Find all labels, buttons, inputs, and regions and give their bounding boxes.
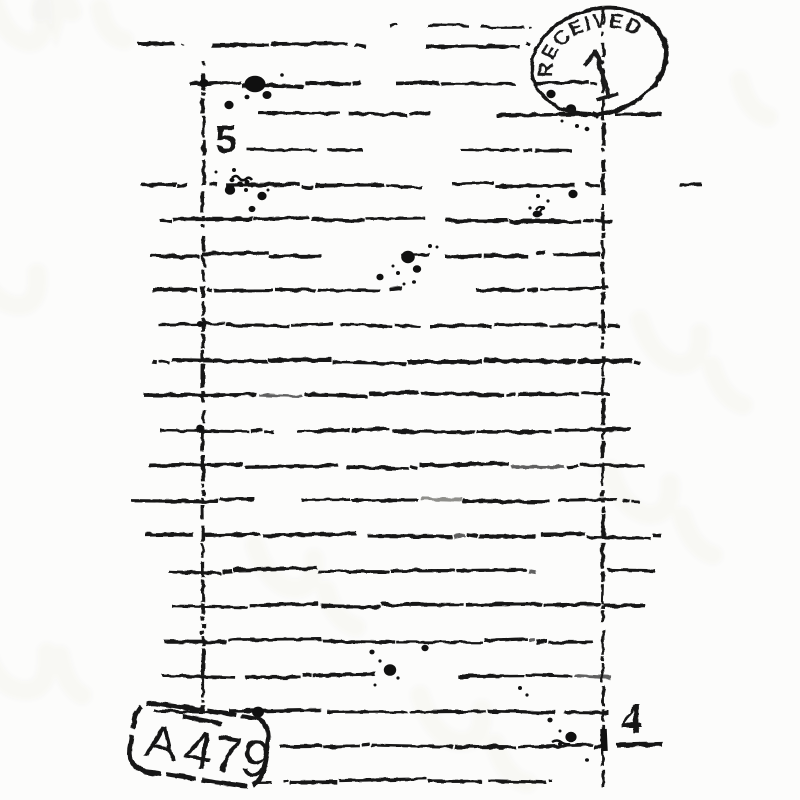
svg-text:5: 5 xyxy=(215,118,237,162)
svg-text:4: 4 xyxy=(621,696,643,743)
